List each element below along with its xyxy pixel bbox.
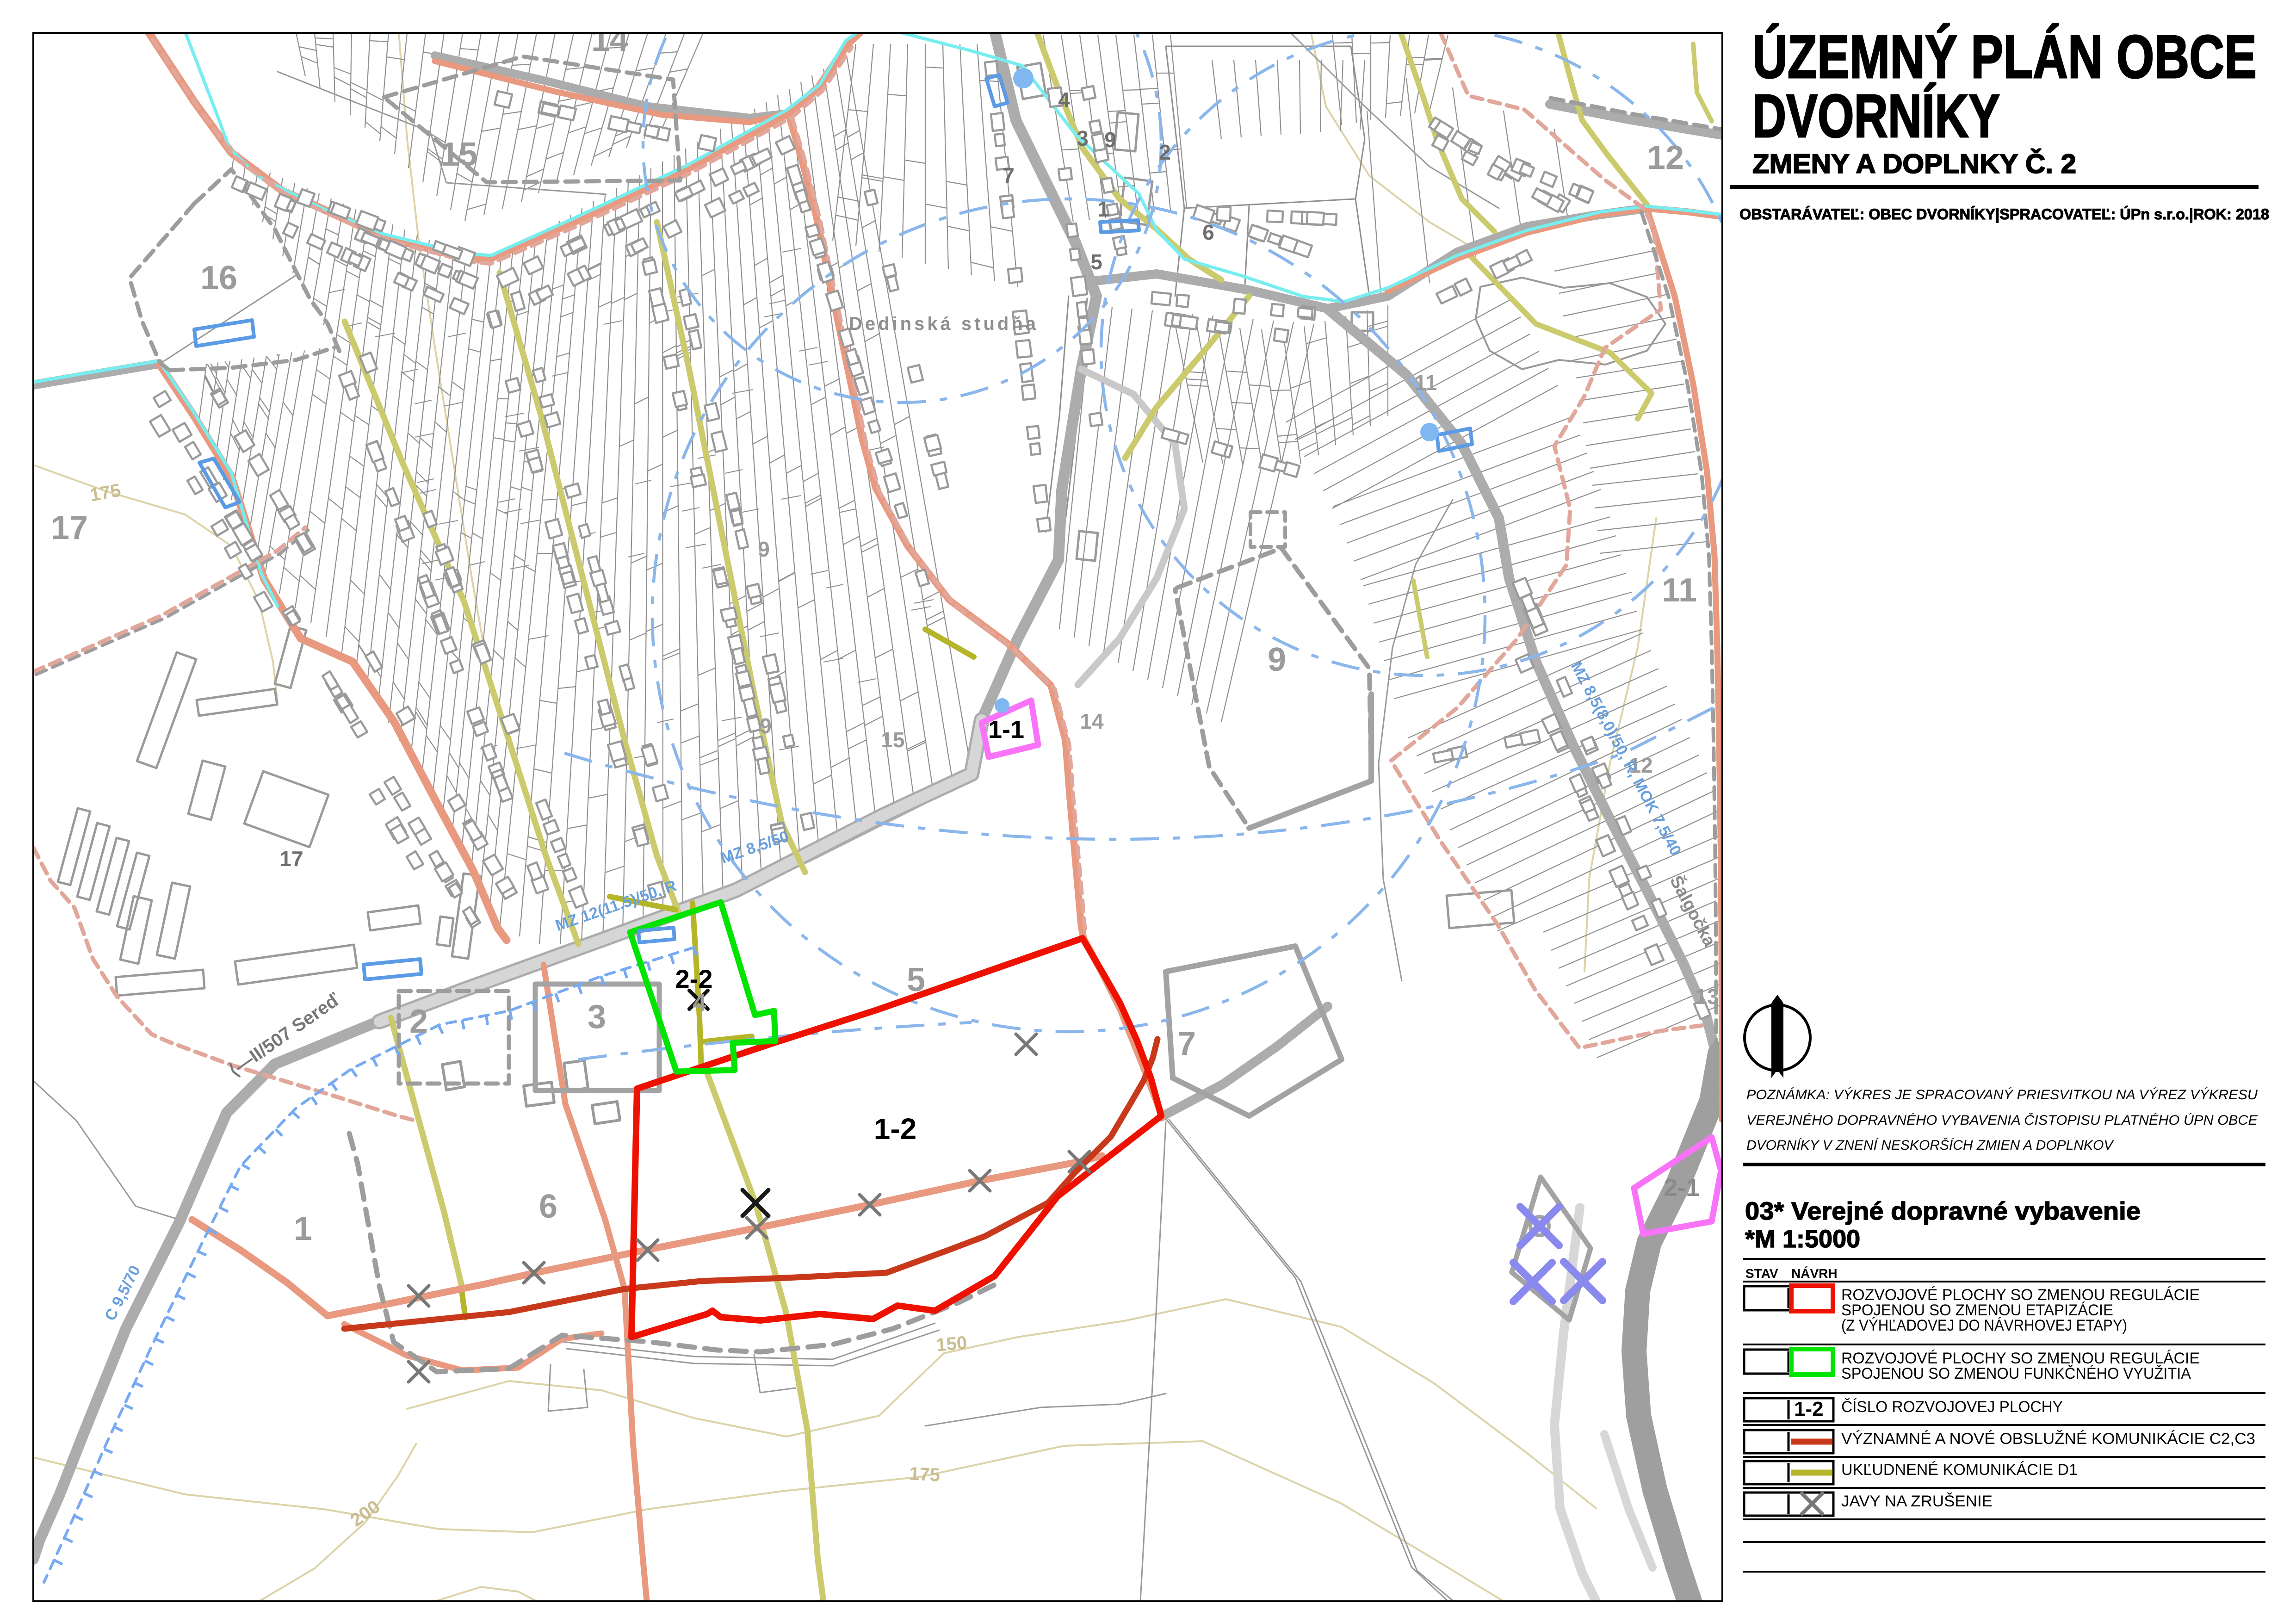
- svg-text:NÁVRH: NÁVRH: [1791, 1266, 1838, 1281]
- svg-text:17: 17: [51, 509, 88, 546]
- svg-text:DVORNÍKY: DVORNÍKY: [1752, 82, 2000, 150]
- svg-text:16: 16: [200, 260, 237, 297]
- svg-text:6: 6: [539, 1188, 557, 1225]
- svg-text:11: 11: [1415, 371, 1437, 395]
- svg-text:5: 5: [1090, 250, 1102, 274]
- svg-text:150: 150: [935, 1332, 968, 1356]
- svg-text:1-1: 1-1: [988, 716, 1024, 743]
- svg-text:03* Verejné dopravné vybavenie: 03* Verejné dopravné vybavenie: [1745, 1197, 2141, 1225]
- svg-text:4: 4: [693, 990, 706, 1016]
- svg-text:2-2: 2-2: [675, 964, 713, 993]
- svg-text:(Z VÝHĽADOVEJ DO NÁVRHOVEJ ETA: (Z VÝHĽADOVEJ DO NÁVRHOVEJ ETAPY): [1841, 1317, 2127, 1334]
- svg-text:1: 1: [294, 1210, 312, 1247]
- svg-text:2: 2: [409, 1003, 428, 1040]
- svg-text:POZNÁMKA: VÝKRES JE SPRACOVAN: POZNÁMKA: VÝKRES JE SPRACOVANÝ PRIESVITK…: [1746, 1087, 2258, 1103]
- svg-text:VÝZNAMNÉ A NOVÉ OBSLUŽNÉ KOMUN: VÝZNAMNÉ A NOVÉ OBSLUŽNÉ KOMUNIKÁCIE C2,…: [1841, 1430, 2255, 1448]
- svg-text:OBSTARÁVATEĽ: OBEC DVORNÍKY|SP: OBSTARÁVATEĽ: OBEC DVORNÍKY|SPRACOVATEĽ:…: [1739, 206, 2269, 223]
- svg-text:2-1: 2-1: [1664, 1174, 1700, 1202]
- svg-text:2: 2: [1159, 140, 1171, 164]
- svg-text:4: 4: [1058, 88, 1070, 112]
- svg-text:9: 9: [760, 714, 772, 738]
- svg-text:3: 3: [1077, 126, 1089, 150]
- svg-text:1-2: 1-2: [1794, 1398, 1824, 1420]
- svg-text:DVORNÍKY V ZNENÍ NESKORŠÍCH ZM: DVORNÍKY V ZNENÍ NESKORŠÍCH ZMIEN A DOPL…: [1746, 1137, 2114, 1153]
- svg-text:9: 9: [1104, 128, 1116, 152]
- svg-text:UKĽUDNENÉ KOMUNIKÁCIE D1: UKĽUDNENÉ KOMUNIKÁCIE D1: [1841, 1461, 2078, 1479]
- svg-text:15: 15: [881, 728, 904, 752]
- svg-text:12: 12: [1647, 139, 1684, 176]
- svg-text:9: 9: [758, 537, 770, 561]
- svg-text:SPOJENOU SO ZMENOU FUNKČNÉHO: SPOJENOU SO ZMENOU FUNKČNÉHO VYUŽITIA: [1841, 1365, 2191, 1382]
- svg-text:14: 14: [1080, 709, 1104, 733]
- svg-text:175: 175: [909, 1463, 941, 1485]
- svg-text:9: 9: [1268, 641, 1286, 678]
- svg-text:Dedinská studňa: Dedinská studňa: [849, 314, 1039, 334]
- svg-text:11: 11: [1662, 572, 1697, 609]
- svg-text:1: 1: [1097, 197, 1109, 221]
- svg-text:*M 1:5000: *M 1:5000: [1745, 1225, 1860, 1253]
- svg-text:7: 7: [1177, 1025, 1196, 1062]
- svg-text:ČÍSLO ROZVOJOVEJ PLOCHY: ČÍSLO ROZVOJOVEJ PLOCHY: [1841, 1398, 2063, 1416]
- svg-text:ZMENY A DOPLNKY Č. 2: ZMENY A DOPLNKY Č. 2: [1752, 149, 2076, 179]
- svg-text:STAV: STAV: [1745, 1266, 1778, 1281]
- svg-text:13: 13: [1695, 985, 1719, 1009]
- svg-text:6: 6: [1202, 220, 1214, 244]
- svg-text:15: 15: [440, 136, 477, 173]
- svg-text:VEREJNÉHO DOPRAVNÉHO VYBAVENIA: VEREJNÉHO DOPRAVNÉHO VYBAVENIA ČISTOPISU…: [1746, 1112, 2258, 1128]
- svg-text:JAVY NA ZRUŠENIE: JAVY NA ZRUŠENIE: [1841, 1493, 1993, 1510]
- svg-text:17: 17: [279, 847, 303, 871]
- svg-text:3: 3: [588, 998, 606, 1035]
- svg-text:1-2: 1-2: [874, 1112, 917, 1146]
- svg-text:5: 5: [907, 961, 925, 998]
- svg-text:ÚZEMNÝ PLÁN OBCE: ÚZEMNÝ PLÁN OBCE: [1752, 23, 2257, 91]
- svg-text:7: 7: [1003, 163, 1015, 187]
